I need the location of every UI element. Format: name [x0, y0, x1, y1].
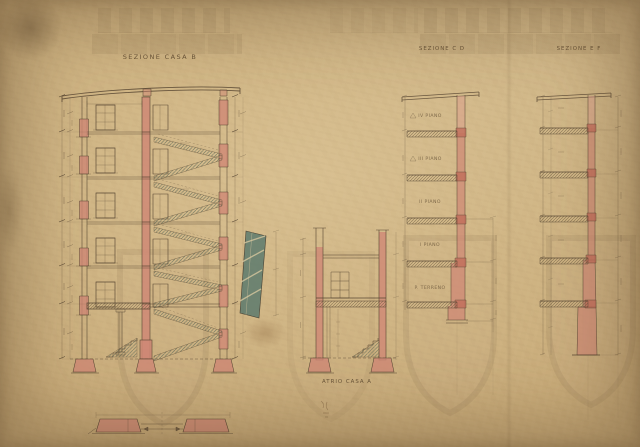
cd-wall-fill [457, 96, 465, 133]
floor-label: III PIANO [418, 156, 441, 162]
floor-label: P. TERRENO [414, 285, 445, 291]
floor-label: II PIANO [419, 199, 441, 205]
top-dimension [87, 101, 142, 107]
atrio-dimension-right [393, 232, 399, 360]
floor-label: IV PIANO [418, 113, 441, 119]
cd-roof [402, 92, 479, 102]
atrio-slab-hatched [316, 301, 386, 307]
section-title: SEZIONE E F [557, 46, 602, 52]
ef-wall-fill [588, 96, 595, 128]
section-title: SEZIONE C D [419, 46, 465, 52]
floor-label: I PIANO [420, 242, 440, 248]
sheet-svg: SEZIONE CASA B [0, 0, 640, 447]
drawing-sheet: SEZIONE CASA B [0, 0, 640, 447]
window-openings-left [96, 105, 115, 307]
center-column-base [140, 340, 152, 359]
ground-slab-hatched [87, 303, 150, 309]
window-sills-left [93, 130, 118, 307]
section-title: ATRIO CASA A [322, 379, 372, 385]
foundation-footings [73, 359, 234, 372]
ef-wall-fill [588, 128, 595, 260]
stair-ramp-detail [240, 230, 279, 318]
ramp-dimension [273, 230, 279, 316]
right-wall [220, 97, 227, 359]
window-mullions-left [96, 105, 115, 307]
cd-wall-fill [457, 133, 465, 263]
ef-roof [537, 93, 611, 102]
center-column [142, 97, 150, 359]
section-title: SEZIONE CASA B [123, 53, 198, 61]
